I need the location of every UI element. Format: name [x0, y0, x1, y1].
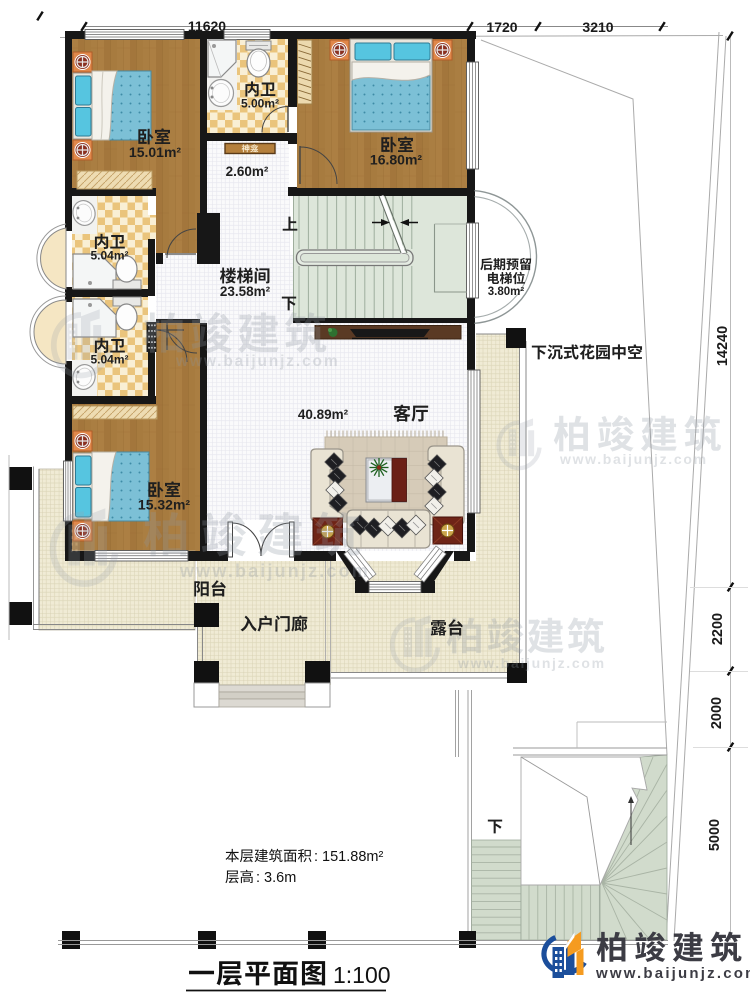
svg-text:2200: 2200 — [710, 613, 726, 645]
svg-text:5.04m²: 5.04m² — [90, 249, 128, 263]
svg-text:23.58m²: 23.58m² — [220, 284, 271, 299]
svg-text:15.32m²: 15.32m² — [138, 497, 190, 513]
svg-text:16.80m²: 16.80m² — [370, 152, 422, 168]
svg-text:: 151.88m²: : 151.88m² — [314, 849, 383, 865]
svg-text:www.baijunjz.com: www.baijunjz.com — [595, 965, 750, 982]
svg-text:15.01m²: 15.01m² — [129, 144, 181, 160]
svg-text:www.baijunjz.com: www.baijunjz.com — [179, 561, 370, 581]
svg-text:40.89m²: 40.89m² — [298, 407, 349, 422]
svg-text:11620: 11620 — [188, 18, 226, 34]
svg-text:2000: 2000 — [709, 697, 725, 729]
svg-text:1:100: 1:100 — [333, 962, 391, 988]
svg-text:3.80m²: 3.80m² — [488, 286, 525, 298]
svg-text:www.baijunjz.com: www.baijunjz.com — [559, 451, 708, 467]
svg-text:5.00m²: 5.00m² — [241, 97, 279, 111]
svg-text:5.04m²: 5.04m² — [90, 353, 128, 367]
svg-text:5000: 5000 — [707, 819, 723, 851]
svg-text:2.60m²: 2.60m² — [226, 164, 269, 179]
svg-text:14240: 14240 — [715, 326, 731, 366]
svg-text:3210: 3210 — [582, 19, 613, 35]
svg-text:www.baijunjz.com: www.baijunjz.com — [175, 353, 340, 370]
svg-text:www.baijunjz.com: www.baijunjz.com — [457, 655, 606, 671]
svg-text:1720: 1720 — [486, 19, 517, 35]
svg-text:: 3.6m: : 3.6m — [256, 870, 296, 886]
